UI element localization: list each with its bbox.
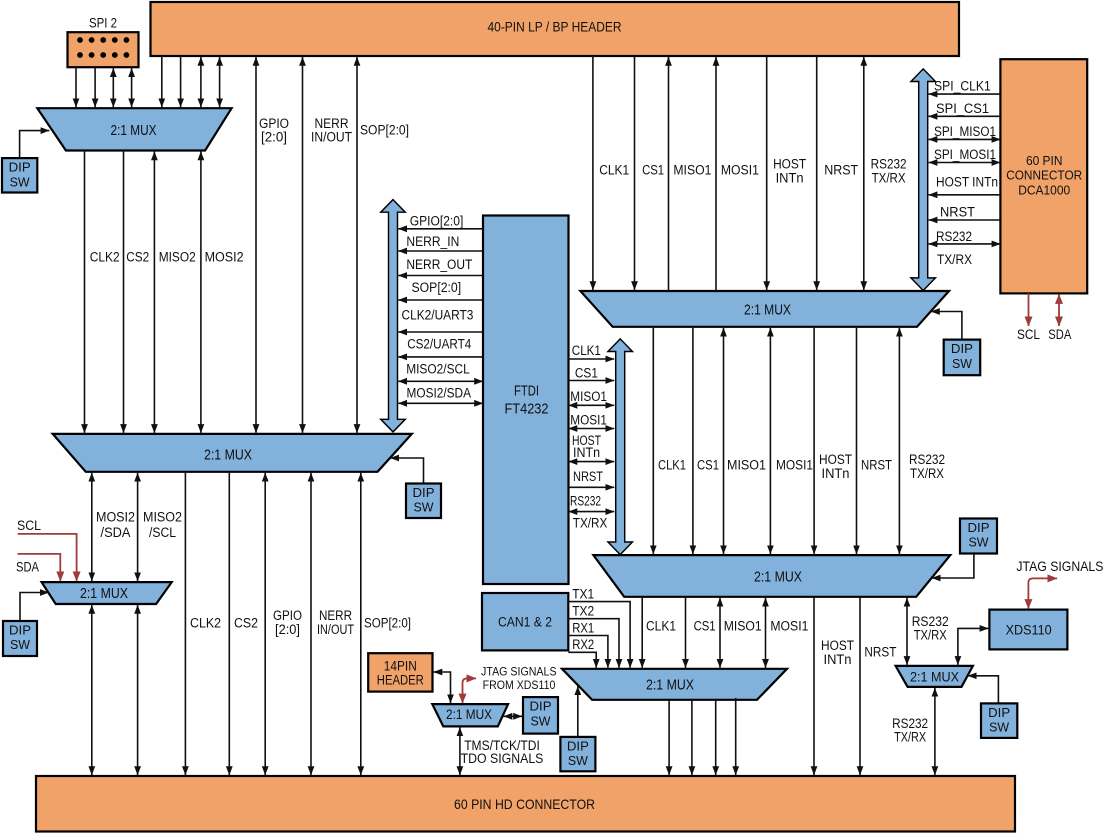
- svg-text:HOST: HOST: [819, 452, 852, 467]
- svg-text:IN/OUT: IN/OUT: [317, 622, 354, 637]
- svg-text:MOSI2/SDA: MOSI2/SDA: [407, 385, 472, 400]
- svg-text:RX2: RX2: [572, 637, 594, 652]
- svg-text:DIP: DIP: [567, 739, 589, 754]
- svg-text:SW: SW: [10, 637, 31, 652]
- svg-text:MISO1: MISO1: [673, 163, 711, 178]
- svg-text:CAN1 & 2: CAN1 & 2: [498, 615, 552, 630]
- svg-text:CS2/UART4: CS2/UART4: [407, 336, 472, 351]
- svg-text:2:1 MUX: 2:1 MUX: [111, 123, 157, 139]
- svg-text:CS1: CS1: [697, 458, 719, 473]
- svg-text:CS1: CS1: [642, 163, 664, 178]
- svg-text:SPI 2: SPI 2: [89, 16, 117, 31]
- svg-text:CLK1: CLK1: [658, 458, 686, 473]
- svg-text:SDA: SDA: [1048, 327, 1071, 342]
- svg-text:DIP: DIP: [9, 623, 31, 638]
- svg-text:DIP: DIP: [951, 341, 973, 356]
- svg-text:[2:0]: [2:0]: [261, 129, 287, 144]
- svg-text:MISO1: MISO1: [570, 389, 607, 404]
- svg-text:MOSI1: MOSI1: [721, 163, 759, 178]
- svg-text:GPIO[2:0]: GPIO[2:0]: [410, 214, 464, 229]
- svg-text:MISO2: MISO2: [159, 250, 196, 265]
- svg-text:SW: SW: [969, 535, 990, 550]
- svg-text:IN/OUT: IN/OUT: [311, 129, 352, 144]
- svg-text:2:1 MUX: 2:1 MUX: [744, 303, 791, 319]
- svg-text:MISO2: MISO2: [143, 510, 182, 525]
- svg-text:NRST: NRST: [573, 469, 603, 484]
- svg-text:JTAG SIGNALS: JTAG SIGNALS: [481, 667, 557, 679]
- svg-text:SCL: SCL: [1017, 327, 1040, 342]
- svg-text:SOP[2:0]: SOP[2:0]: [364, 616, 411, 631]
- svg-text:XDS110: XDS110: [1006, 623, 1052, 638]
- svg-text:SDA: SDA: [16, 560, 39, 575]
- svg-text:SPI_CLK1: SPI_CLK1: [934, 79, 991, 94]
- svg-text:SOP[2:0]: SOP[2:0]: [412, 280, 462, 295]
- svg-text:CS2: CS2: [126, 250, 149, 265]
- svg-text:DIP: DIP: [530, 699, 552, 714]
- svg-text:SW: SW: [952, 356, 973, 371]
- svg-text:SPI_MOSI1: SPI_MOSI1: [934, 147, 996, 162]
- svg-text:2:1 MUX: 2:1 MUX: [446, 707, 492, 722]
- svg-text:TX2: TX2: [572, 604, 594, 619]
- svg-text:MOSI1: MOSI1: [776, 458, 813, 473]
- svg-text:TX/RX: TX/RX: [894, 730, 926, 745]
- svg-text:NERR_IN: NERR_IN: [406, 234, 459, 249]
- svg-text:60 PIN: 60 PIN: [1026, 153, 1063, 168]
- svg-text:MISO1: MISO1: [727, 458, 766, 473]
- svg-text:TX/RX: TX/RX: [573, 516, 608, 531]
- svg-text:SW: SW: [10, 174, 31, 189]
- svg-text:SW: SW: [414, 500, 435, 515]
- svg-text:40-PIN LP / BP HEADER: 40-PIN LP / BP HEADER: [488, 19, 622, 35]
- svg-text:HEADER: HEADER: [377, 673, 424, 688]
- svg-text:RS232: RS232: [871, 157, 907, 172]
- svg-text:2:1 MUX: 2:1 MUX: [910, 670, 959, 685]
- svg-text:60 PIN HD CONNECTOR: 60 PIN HD CONNECTOR: [454, 796, 595, 812]
- svg-text:CS1: CS1: [575, 365, 598, 380]
- svg-text:NRST: NRST: [940, 205, 975, 220]
- svg-text:2:1 MUX: 2:1 MUX: [754, 570, 802, 586]
- svg-text:SPI_CS1: SPI_CS1: [936, 101, 989, 116]
- svg-text:DIP: DIP: [988, 705, 1010, 720]
- svg-text:[2:0]: [2:0]: [275, 622, 300, 637]
- svg-text:SOP[2:0]: SOP[2:0]: [360, 123, 409, 138]
- svg-text:2:1 MUX: 2:1 MUX: [204, 448, 252, 464]
- svg-text:SPI_MISO1: SPI_MISO1: [934, 124, 996, 139]
- svg-text:TX/RX: TX/RX: [937, 252, 972, 267]
- svg-text:FROM XDS110: FROM XDS110: [483, 680, 556, 692]
- svg-text:TDO SIGNALS: TDO SIGNALS: [461, 751, 544, 766]
- svg-text:SW: SW: [531, 713, 552, 728]
- svg-text:NERR_OUT: NERR_OUT: [406, 257, 472, 272]
- svg-text:MISO2/SCL: MISO2/SCL: [406, 362, 470, 377]
- svg-text:NERR: NERR: [319, 608, 352, 623]
- svg-text:INTn: INTn: [776, 171, 804, 186]
- svg-text:HOST INTn: HOST INTn: [936, 175, 998, 190]
- svg-text:RS232: RS232: [909, 452, 945, 467]
- svg-text:CS2: CS2: [234, 616, 258, 631]
- svg-text:14PIN: 14PIN: [384, 659, 417, 674]
- svg-text:INTn: INTn: [573, 445, 600, 460]
- svg-text:FT4232: FT4232: [505, 402, 549, 418]
- svg-text:CLK1: CLK1: [572, 343, 601, 358]
- svg-text:SW: SW: [568, 753, 589, 768]
- svg-text:TX/RX: TX/RX: [914, 628, 947, 643]
- svg-text:RX1: RX1: [572, 620, 594, 635]
- svg-text:DCA1000: DCA1000: [1018, 182, 1070, 197]
- svg-text:2:1 MUX: 2:1 MUX: [80, 586, 128, 602]
- svg-text:MISO1: MISO1: [724, 619, 762, 634]
- svg-text:CS1: CS1: [694, 619, 716, 634]
- svg-text:MOSI1: MOSI1: [570, 412, 607, 427]
- svg-text:TX/RX: TX/RX: [910, 466, 944, 481]
- svg-text:/SCL: /SCL: [149, 525, 176, 540]
- svg-text:HOST: HOST: [773, 157, 806, 172]
- svg-text:INTn: INTn: [824, 652, 852, 667]
- svg-text:CLK1: CLK1: [599, 163, 629, 178]
- svg-text:GPIO: GPIO: [273, 608, 302, 623]
- svg-text:HOST: HOST: [821, 638, 854, 653]
- svg-text:JTAG SIGNALS: JTAG SIGNALS: [1016, 559, 1103, 574]
- svg-text:INTn: INTn: [822, 466, 850, 481]
- svg-text:CLK1: CLK1: [646, 619, 676, 634]
- svg-text:CLK2: CLK2: [190, 616, 221, 631]
- svg-text:CONNECTOR: CONNECTOR: [1006, 167, 1082, 182]
- svg-text:SCL: SCL: [17, 518, 41, 533]
- svg-text:MOSI1: MOSI1: [770, 619, 808, 634]
- svg-text:TX/RX: TX/RX: [872, 171, 906, 186]
- svg-text:SW: SW: [989, 720, 1010, 735]
- svg-text:MOSI2: MOSI2: [96, 510, 135, 525]
- svg-text:/SDA: /SDA: [101, 525, 131, 540]
- svg-text:CLK2: CLK2: [90, 250, 120, 265]
- svg-text:FTDI: FTDI: [514, 384, 539, 400]
- svg-text:2:1 MUX: 2:1 MUX: [646, 678, 694, 694]
- svg-text:DIP: DIP: [9, 160, 31, 175]
- svg-text:RS232: RS232: [936, 229, 972, 244]
- svg-text:NRST: NRST: [861, 458, 892, 473]
- svg-text:NRST: NRST: [824, 163, 858, 178]
- svg-text:RS232: RS232: [570, 493, 601, 508]
- svg-text:CLK2/UART3: CLK2/UART3: [402, 308, 474, 323]
- svg-text:DIP: DIP: [968, 520, 990, 535]
- svg-text:TX1: TX1: [572, 586, 594, 601]
- svg-text:MOSI2: MOSI2: [205, 250, 244, 265]
- svg-text:NRST: NRST: [864, 645, 896, 660]
- svg-text:DIP: DIP: [413, 485, 435, 500]
